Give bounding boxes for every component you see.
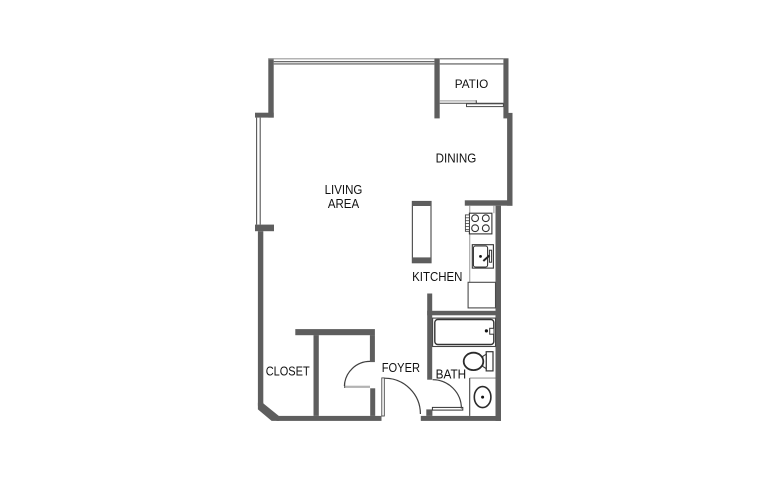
svg-text:KITCHEN: KITCHEN <box>412 269 462 284</box>
svg-text:PATIO: PATIO <box>455 77 489 91</box>
svg-text:FOYER: FOYER <box>382 360 420 375</box>
svg-text:BATH: BATH <box>436 367 467 382</box>
svg-text:DINING: DINING <box>436 150 477 165</box>
svg-text:AREA: AREA <box>328 196 359 211</box>
svg-text:CLOSET: CLOSET <box>266 364 310 379</box>
